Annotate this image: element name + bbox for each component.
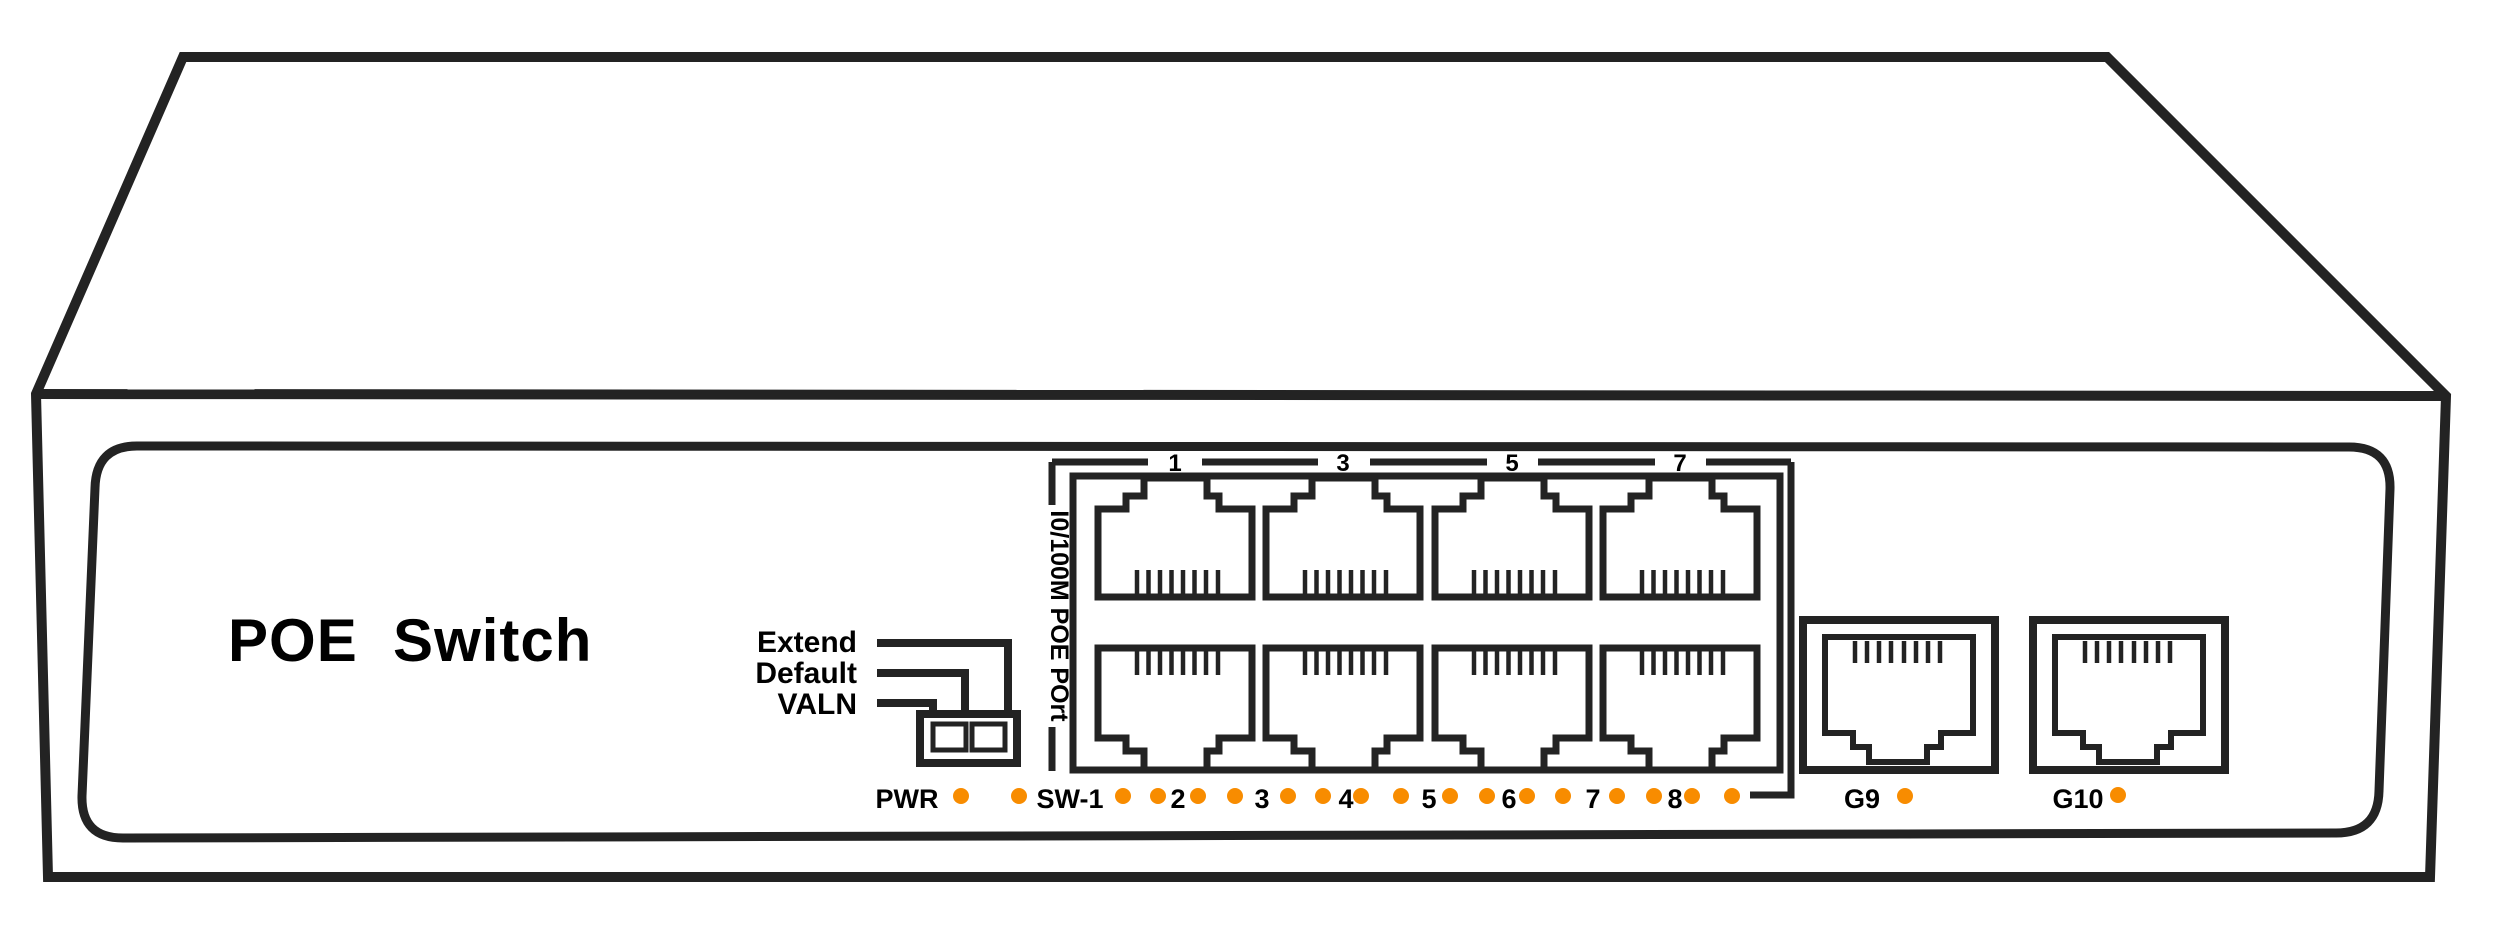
led-dot [1646,788,1662,804]
led-label-pwr: PWR [876,784,939,814]
led-dot [1190,788,1206,804]
poe-switch-diagram: POE Switch Extend Default VALN I0/100M P… [0,0,2495,928]
led-dot [1555,788,1571,804]
port-number-3: 3 [1336,450,1349,477]
led-dot [1011,788,1027,804]
led-label-6: 6 [1501,784,1516,814]
led-dot [953,788,969,804]
led-label-3: 3 [1254,784,1269,814]
led-dot [1115,788,1131,804]
uplink-label-g10: G10 [2052,784,2103,814]
port-number-5: 5 [1505,450,1518,477]
led-dot [1315,788,1331,804]
dip-label-default: Default [755,657,857,690]
led-dot [1393,788,1409,804]
led-label-8: 8 [1667,784,1682,814]
led-dot [1724,788,1740,804]
port-number-7: 7 [1673,450,1686,477]
brand-label: POE Switch [228,607,592,674]
chassis-front-top-edge [36,394,2446,396]
dip-label-extend: Extend [757,626,857,659]
diagram-canvas: POE Switch Extend Default VALN I0/100M P… [0,0,2495,928]
led-label-2: 2 [1170,784,1185,814]
led-dot [1684,788,1700,804]
port-number-1: 1 [1168,450,1181,477]
led-label-4: 4 [1338,784,1353,814]
led-dot [1353,788,1369,804]
uplink-label-g9: G9 [1844,784,1880,814]
led-label-5: 5 [1421,784,1436,814]
led-dot-g10 [2110,787,2126,803]
led-dot [1609,788,1625,804]
led-label-sw1: SW-1 [1037,784,1104,814]
led-dot [1227,788,1243,804]
led-dot [1519,788,1535,804]
led-dot [1479,788,1495,804]
led-dot [1280,788,1296,804]
led-label-7: 7 [1585,784,1600,814]
led-dot-g9 [1897,788,1913,804]
chassis-outline [36,57,2446,877]
led-dot [1442,788,1458,804]
poe-group-label: I0/100M POE POrt [1045,510,1073,722]
led-dot [1150,788,1166,804]
dip-label-valn: VALN [778,688,857,721]
